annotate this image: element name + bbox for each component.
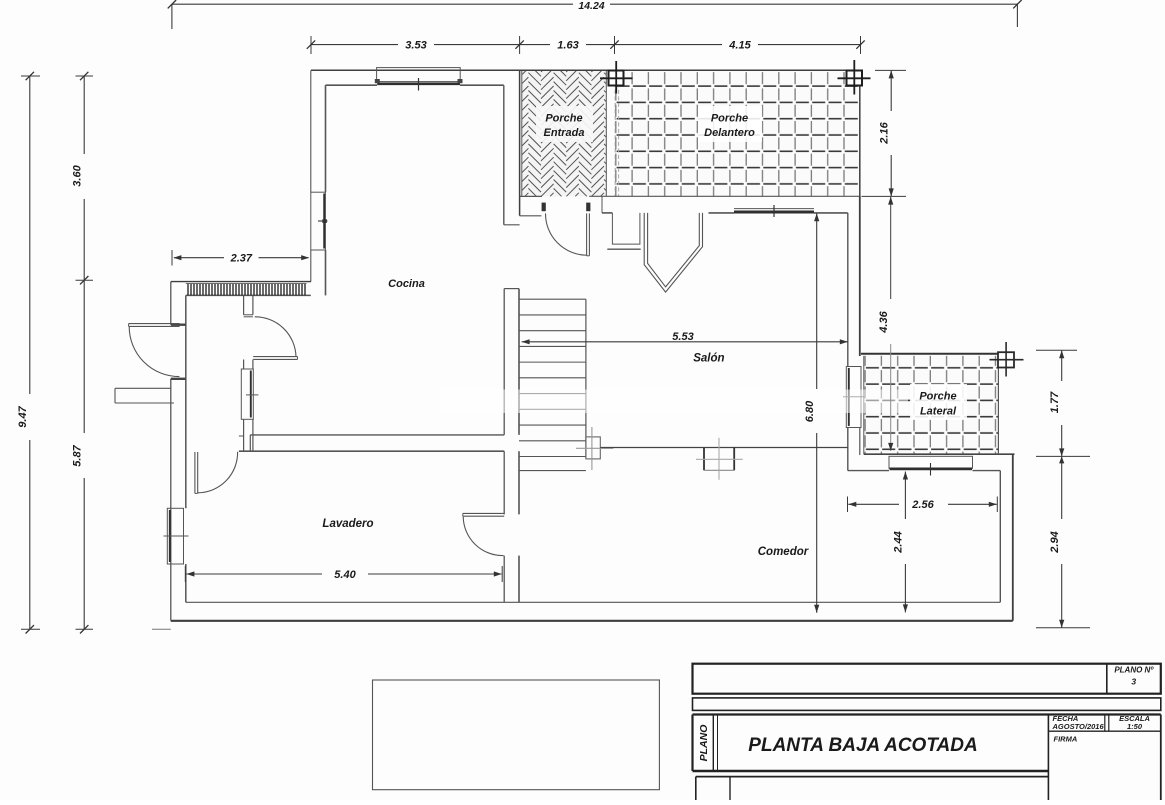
svg-text:Cocina: Cocina bbox=[388, 278, 425, 290]
svg-text:9.47: 9.47 bbox=[17, 405, 29, 427]
svg-text:5.53: 5.53 bbox=[672, 331, 693, 343]
svg-text:2.44: 2.44 bbox=[893, 531, 905, 553]
svg-text:4.36: 4.36 bbox=[878, 310, 890, 333]
svg-text:3.60: 3.60 bbox=[72, 164, 84, 186]
svg-text:Porche: Porche bbox=[711, 113, 748, 125]
svg-text:Comedor: Comedor bbox=[758, 546, 809, 558]
svg-text:4.15: 4.15 bbox=[728, 40, 751, 52]
svg-text:PLANO Nº: PLANO Nº bbox=[1114, 666, 1154, 675]
svg-text:14.24: 14.24 bbox=[578, 0, 604, 12]
svg-text:1.63: 1.63 bbox=[557, 40, 578, 52]
svg-text:2.56: 2.56 bbox=[911, 499, 934, 511]
svg-text:Lateral: Lateral bbox=[920, 406, 957, 418]
svg-text:2.16: 2.16 bbox=[879, 121, 891, 144]
svg-text:AGOSTO/2016: AGOSTO/2016 bbox=[1052, 722, 1105, 731]
svg-text:5.87: 5.87 bbox=[72, 444, 84, 466]
svg-text:Lavadero: Lavadero bbox=[322, 518, 373, 530]
svg-text:Delantero: Delantero bbox=[704, 127, 755, 139]
svg-text:Porche: Porche bbox=[545, 113, 582, 125]
svg-text:PLANO: PLANO bbox=[698, 725, 710, 762]
svg-text:1:50: 1:50 bbox=[1127, 722, 1143, 731]
svg-text:Entrada: Entrada bbox=[544, 127, 585, 139]
svg-text:Porche: Porche bbox=[919, 391, 956, 403]
svg-text:5.40: 5.40 bbox=[334, 569, 356, 581]
svg-text:1.77: 1.77 bbox=[1049, 391, 1061, 413]
svg-text:2.94: 2.94 bbox=[1049, 531, 1061, 553]
svg-text:PLANTA BAJA ACOTADA: PLANTA BAJA ACOTADA bbox=[748, 735, 977, 756]
svg-text:3.53: 3.53 bbox=[405, 40, 426, 52]
svg-text:2.37: 2.37 bbox=[230, 253, 253, 265]
svg-text:3: 3 bbox=[1131, 677, 1136, 687]
svg-text:FIRMA: FIRMA bbox=[1054, 735, 1078, 744]
svg-text:6.80: 6.80 bbox=[804, 400, 816, 422]
svg-text:Salón: Salón bbox=[693, 353, 724, 365]
